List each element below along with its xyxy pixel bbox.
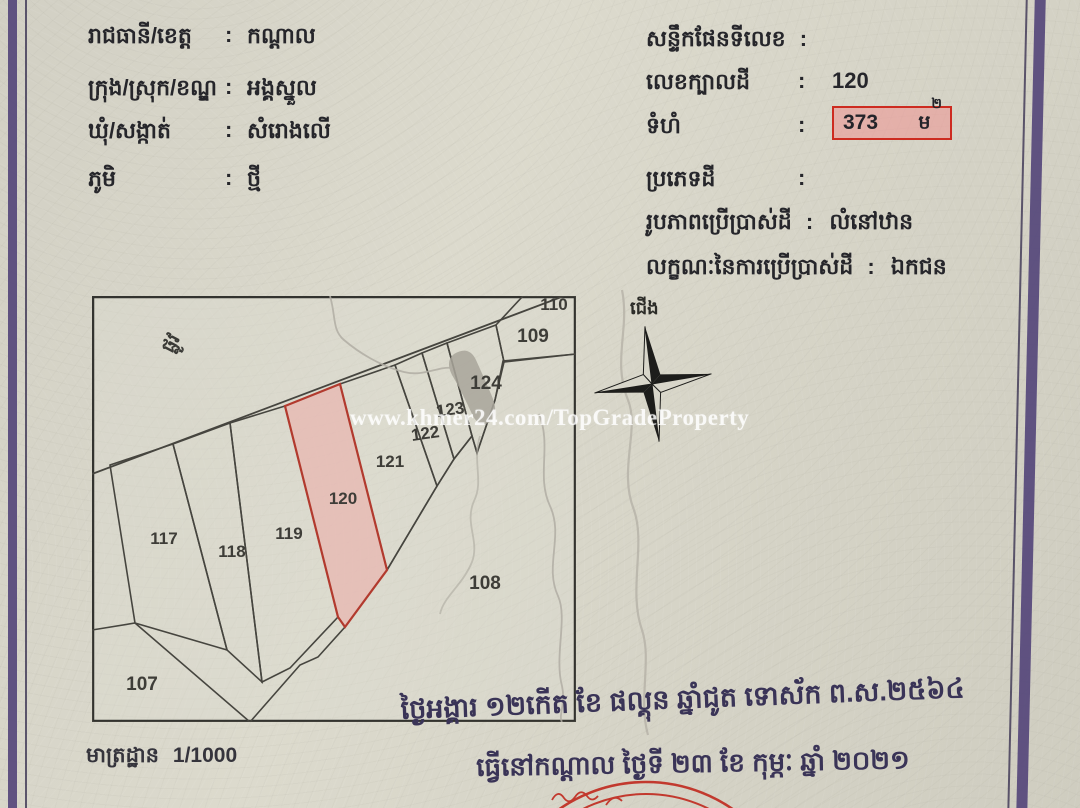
- parcel-label-117: 117: [150, 529, 177, 548]
- cadastral-map: ផ្លូវ 107 108 109 110 117 118 119 120 12…: [92, 296, 576, 722]
- parcel-label-118: 118: [218, 542, 245, 561]
- parcel-label-108: 108: [469, 573, 501, 594]
- scale-value: 1/1000: [173, 744, 237, 767]
- parcel-label-107: 107: [126, 674, 158, 695]
- parcel-label-110: 110: [540, 296, 567, 314]
- red-stamp-inner-arc: [506, 794, 786, 808]
- watermark-text: www.khmer24.com/TopGradeProperty: [350, 405, 750, 431]
- parcel-label-124: 124: [470, 373, 502, 394]
- parcel-label-119: 119: [275, 524, 302, 543]
- parcel-label-109: 109: [517, 326, 549, 347]
- parcel-label-121: 121: [376, 452, 404, 471]
- parcel-label-120: 120: [329, 489, 357, 508]
- land-title-document: រាជធានី/ខេត្ត : កណ្ដាល ក្រុង/ស្រុក/ខណ្ឌ …: [0, 0, 1080, 808]
- red-stamp: [468, 768, 848, 808]
- scale-row: មាត្រដ្ឋាន1/1000: [86, 742, 237, 773]
- scale-label: មាត្រដ្ឋាន: [86, 744, 159, 767]
